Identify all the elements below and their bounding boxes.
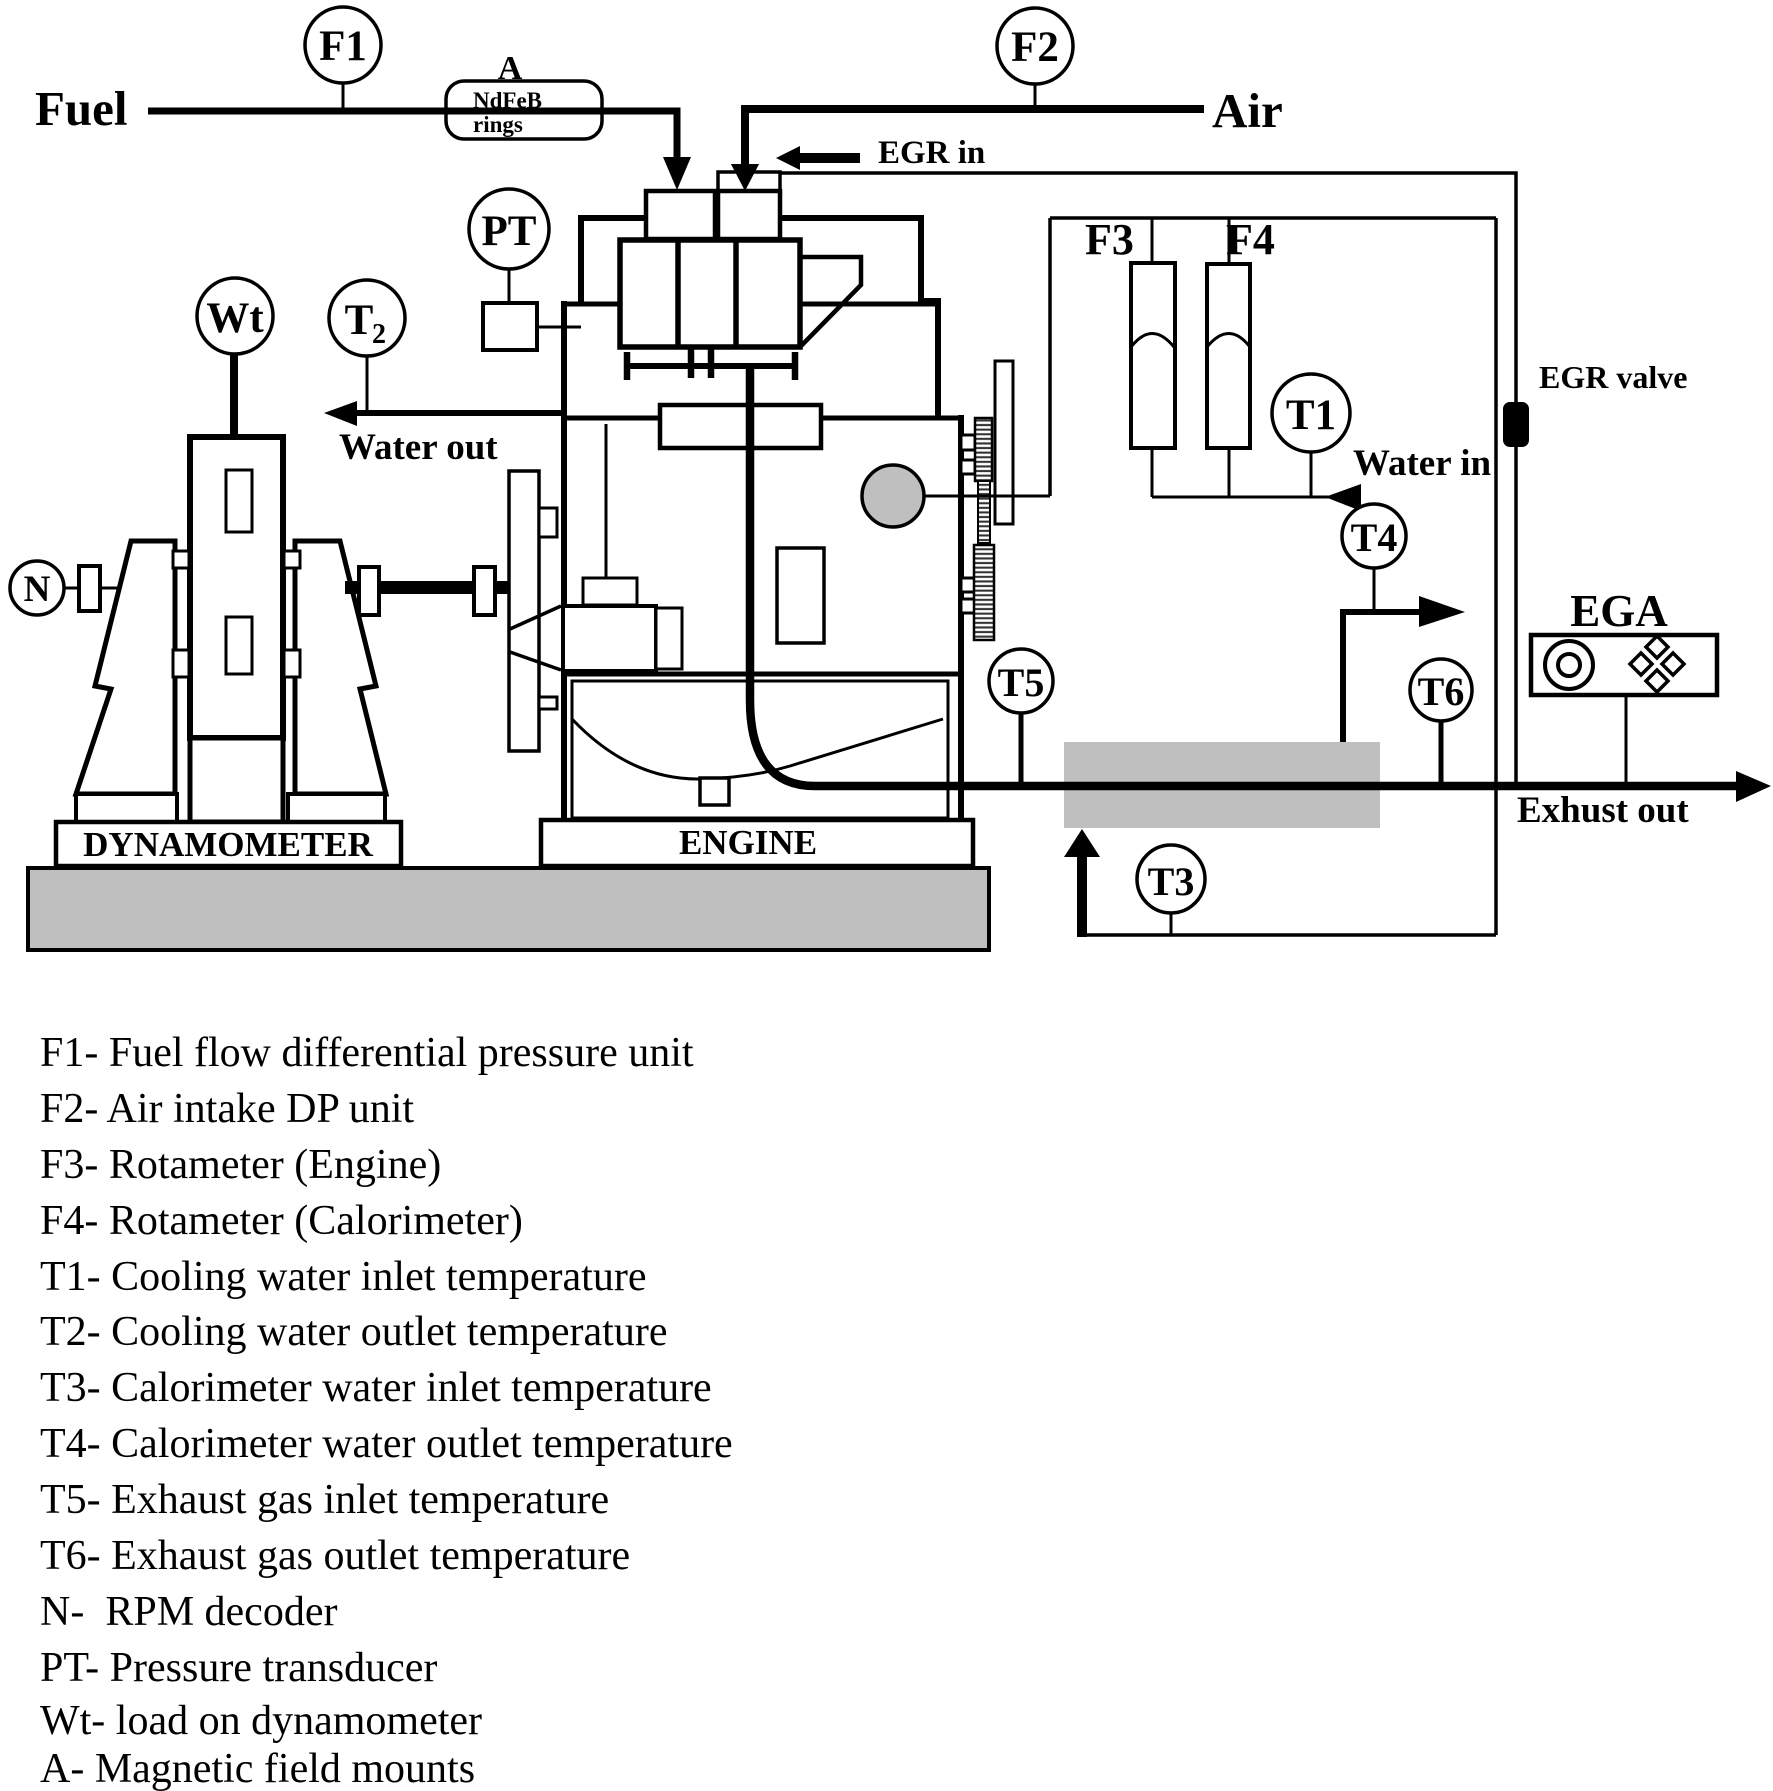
svg-text:T1- Cooling water inlet temper: T1- Cooling water inlet temperature [40, 1254, 646, 1300]
svg-text:F3: F3 [1085, 215, 1134, 264]
svg-text:F2: F2 [1011, 24, 1059, 71]
svg-text:Water in: Water in [1353, 443, 1491, 484]
svg-text:T5- Exhaust gas inlet temperat: T5- Exhaust gas inlet temperature [40, 1477, 609, 1523]
svg-text:A- Magnetic field mounts: A- Magnetic field mounts [40, 1746, 475, 1791]
svg-text:T5: T5 [998, 660, 1045, 705]
svg-text:T6: T6 [1418, 669, 1465, 714]
svg-text:F2- Air intake DP unit: F2- Air intake DP unit [40, 1086, 414, 1132]
svg-text:Air: Air [1212, 83, 1283, 138]
svg-text:ENGINE: ENGINE [679, 823, 817, 862]
svg-text:DYNAMOMETER: DYNAMOMETER [83, 825, 373, 864]
svg-text:F4: F4 [1226, 215, 1275, 264]
svg-text:F3- Rotameter (Engine): F3- Rotameter (Engine) [40, 1142, 441, 1188]
svg-text:NdFeB: NdFeB [473, 88, 542, 113]
svg-text:Water out: Water out [339, 427, 498, 468]
svg-text:T4- Calorimeter water outlet t: T4- Calorimeter water outlet temperature [40, 1421, 733, 1467]
svg-text:PT: PT [482, 208, 537, 255]
svg-text:A: A [498, 50, 523, 87]
svg-text:N- RPM decoder: N- RPM decoder [40, 1589, 337, 1635]
svg-text:Wt: Wt [206, 295, 264, 342]
svg-text:EGA: EGA [1570, 586, 1668, 636]
svg-text:T6- Exhaust gas outlet tempera: T6- Exhaust gas outlet temperature [40, 1533, 630, 1579]
svg-text:Exhust out: Exhust out [1517, 790, 1689, 831]
svg-text:PT- Pressure transducer: PT- Pressure transducer [40, 1645, 437, 1691]
svg-text:T3- Calorimeter water inlet te: T3- Calorimeter water inlet temperature [40, 1365, 712, 1411]
svg-text:N: N [24, 569, 51, 610]
svg-text:rings: rings [473, 112, 523, 137]
svg-text:T2- Cooling water outlet tempe: T2- Cooling water outlet temperature [40, 1309, 667, 1355]
svg-text:T3: T3 [1148, 859, 1195, 904]
svg-text:F4- Rotameter (Calorimeter): F4- Rotameter (Calorimeter) [40, 1198, 523, 1244]
svg-text:F1: F1 [319, 23, 367, 70]
svg-text:2: 2 [372, 319, 386, 350]
svg-text:T1: T1 [1286, 392, 1336, 439]
svg-text:EGR valve: EGR valve [1539, 359, 1687, 395]
svg-text:F1- Fuel flow differential pre: F1- Fuel flow differential pressure unit [40, 1030, 694, 1076]
svg-text:Wt- load on dynamometer: Wt- load on dynamometer [40, 1698, 482, 1744]
svg-text:Fuel: Fuel [35, 81, 128, 136]
svg-text:T4: T4 [1351, 515, 1398, 560]
svg-text:T: T [345, 297, 374, 344]
svg-text:EGR in: EGR in [878, 135, 985, 171]
